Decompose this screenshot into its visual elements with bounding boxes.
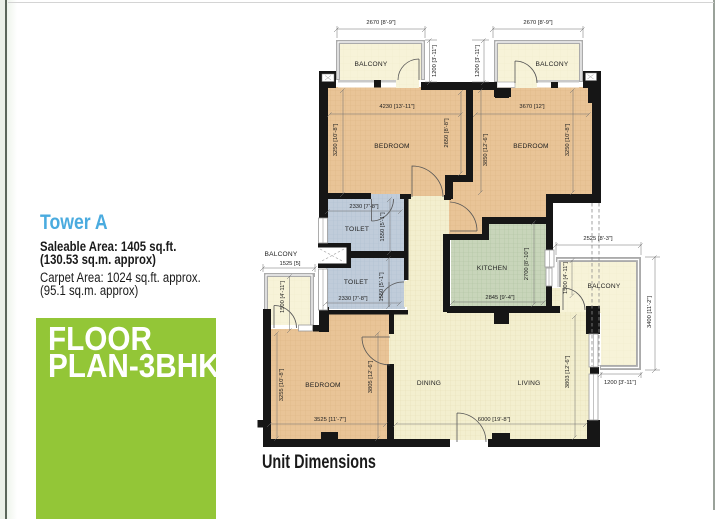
svg-text:TOILET: TOILET — [345, 226, 369, 233]
svg-text:2525 [8'-3"]: 2525 [8'-3"] — [583, 236, 613, 242]
svg-text:BEDROOM: BEDROOM — [513, 143, 548, 150]
svg-text:LIVING: LIVING — [518, 380, 541, 387]
svg-text:6000 [19'-8"]: 6000 [19'-8"] — [478, 417, 511, 423]
svg-text:BALCONY: BALCONY — [355, 61, 388, 68]
svg-text:BALCONY: BALCONY — [536, 61, 569, 68]
svg-text:3400 [11'-2"]: 3400 [11'-2"] — [647, 296, 653, 328]
svg-text:BALCONY: BALCONY — [265, 251, 298, 258]
svg-text:1500 [4'-11"]: 1500 [4'-11"] — [563, 262, 569, 294]
svg-text:3803 [12'-6"]: 3803 [12'-6"] — [565, 355, 571, 388]
svg-text:1550 [5'-1"]: 1550 [5'-1"] — [380, 212, 386, 242]
svg-text:BEDROOM: BEDROOM — [305, 382, 340, 389]
svg-text:1200 [3'-11"]: 1200 [3'-11"] — [604, 380, 636, 386]
svg-text:BALCONY: BALCONY — [588, 283, 621, 290]
svg-text:4230 [13'-11"]: 4230 [13'-11"] — [379, 104, 415, 110]
svg-text:2845 [9'-4"]: 2845 [9'-4"] — [485, 295, 515, 301]
svg-text:3255 [10'-8"]: 3255 [10'-8"] — [279, 368, 285, 401]
svg-text:3250 [10'-8"]: 3250 [10'-8"] — [333, 123, 339, 156]
svg-text:BEDROOM: BEDROOM — [374, 143, 409, 150]
svg-text:1500 [4'-11"]: 1500 [4'-11"] — [280, 281, 286, 313]
svg-text:3525 [11'-7"]: 3525 [11'-7"] — [314, 417, 346, 423]
svg-text:2670 [8'-9"]: 2670 [8'-9"] — [366, 20, 396, 26]
svg-text:3250 [10'-8"]: 3250 [10'-8"] — [565, 123, 571, 156]
svg-text:3805 [12'-6"]: 3805 [12'-6"] — [368, 360, 374, 393]
svg-text:1550 [5'-1"]: 1550 [5'-1"] — [379, 272, 385, 302]
svg-text:1200 [3'-11"]: 1200 [3'-11"] — [432, 45, 438, 77]
svg-text:3670 [12']: 3670 [12'] — [519, 104, 545, 110]
svg-text:DINING: DINING — [417, 380, 441, 387]
svg-text:TOILET: TOILET — [344, 279, 368, 286]
svg-text:2330 [7'-8"]: 2330 [7'-8"] — [338, 296, 368, 302]
svg-text:2670 [8'-9"]: 2670 [8'-9"] — [523, 20, 553, 26]
svg-text:2650 [8'-8"]: 2650 [8'-8"] — [444, 118, 450, 148]
svg-text:2700 [8'-10"]: 2700 [8'-10"] — [524, 247, 530, 280]
svg-text:1525 [5]: 1525 [5] — [280, 261, 301, 267]
svg-text:KITCHEN: KITCHEN — [477, 265, 507, 272]
svg-text:1200 [3'-11"]: 1200 [3'-11"] — [475, 45, 481, 77]
svg-text:2330 [7'-8"]: 2330 [7'-8"] — [349, 204, 379, 210]
svg-text:3850 [12'-6"]: 3850 [12'-6"] — [483, 133, 489, 166]
